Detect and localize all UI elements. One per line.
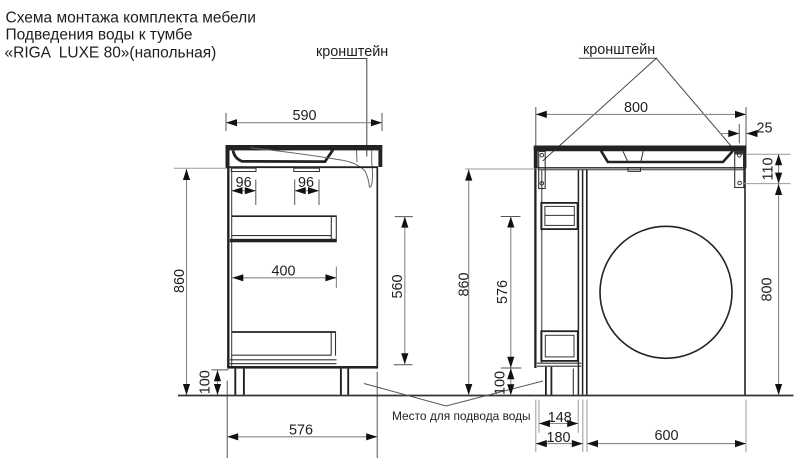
svg-text:600: 600 — [654, 428, 678, 444]
svg-text:110: 110 — [761, 158, 777, 181]
svg-text:Подведения воды к тумбе: Подведения воды к тумбе — [6, 27, 193, 44]
svg-text:180: 180 — [546, 430, 570, 446]
svg-text:«RIGA LUXE 80»(напольная): «RIGA LUXE 80»(напольная) — [5, 45, 217, 62]
svg-text:кронштейн: кронштейн — [316, 44, 388, 60]
svg-text:Схема монтажа комплекта мебели: Схема монтажа комплекта мебели — [6, 10, 256, 27]
svg-text:100: 100 — [198, 370, 214, 394]
svg-text:Место для подвода воды: Место для подвода воды — [392, 409, 531, 423]
svg-text:560: 560 — [390, 274, 406, 298]
svg-text:800: 800 — [624, 100, 648, 116]
svg-text:860: 860 — [172, 269, 188, 293]
svg-text:860: 860 — [457, 272, 473, 296]
svg-text:576: 576 — [495, 280, 511, 304]
svg-text:590: 590 — [292, 108, 316, 124]
svg-text:148: 148 — [548, 410, 572, 426]
svg-text:400: 400 — [271, 264, 295, 280]
svg-text:96: 96 — [236, 175, 252, 191]
svg-text:кронштейн: кронштейн — [583, 42, 655, 58]
svg-text:96: 96 — [298, 175, 314, 191]
svg-text:576: 576 — [289, 422, 313, 438]
svg-text:25: 25 — [757, 121, 773, 137]
svg-text:800: 800 — [760, 277, 776, 301]
svg-text:100: 100 — [492, 371, 508, 395]
